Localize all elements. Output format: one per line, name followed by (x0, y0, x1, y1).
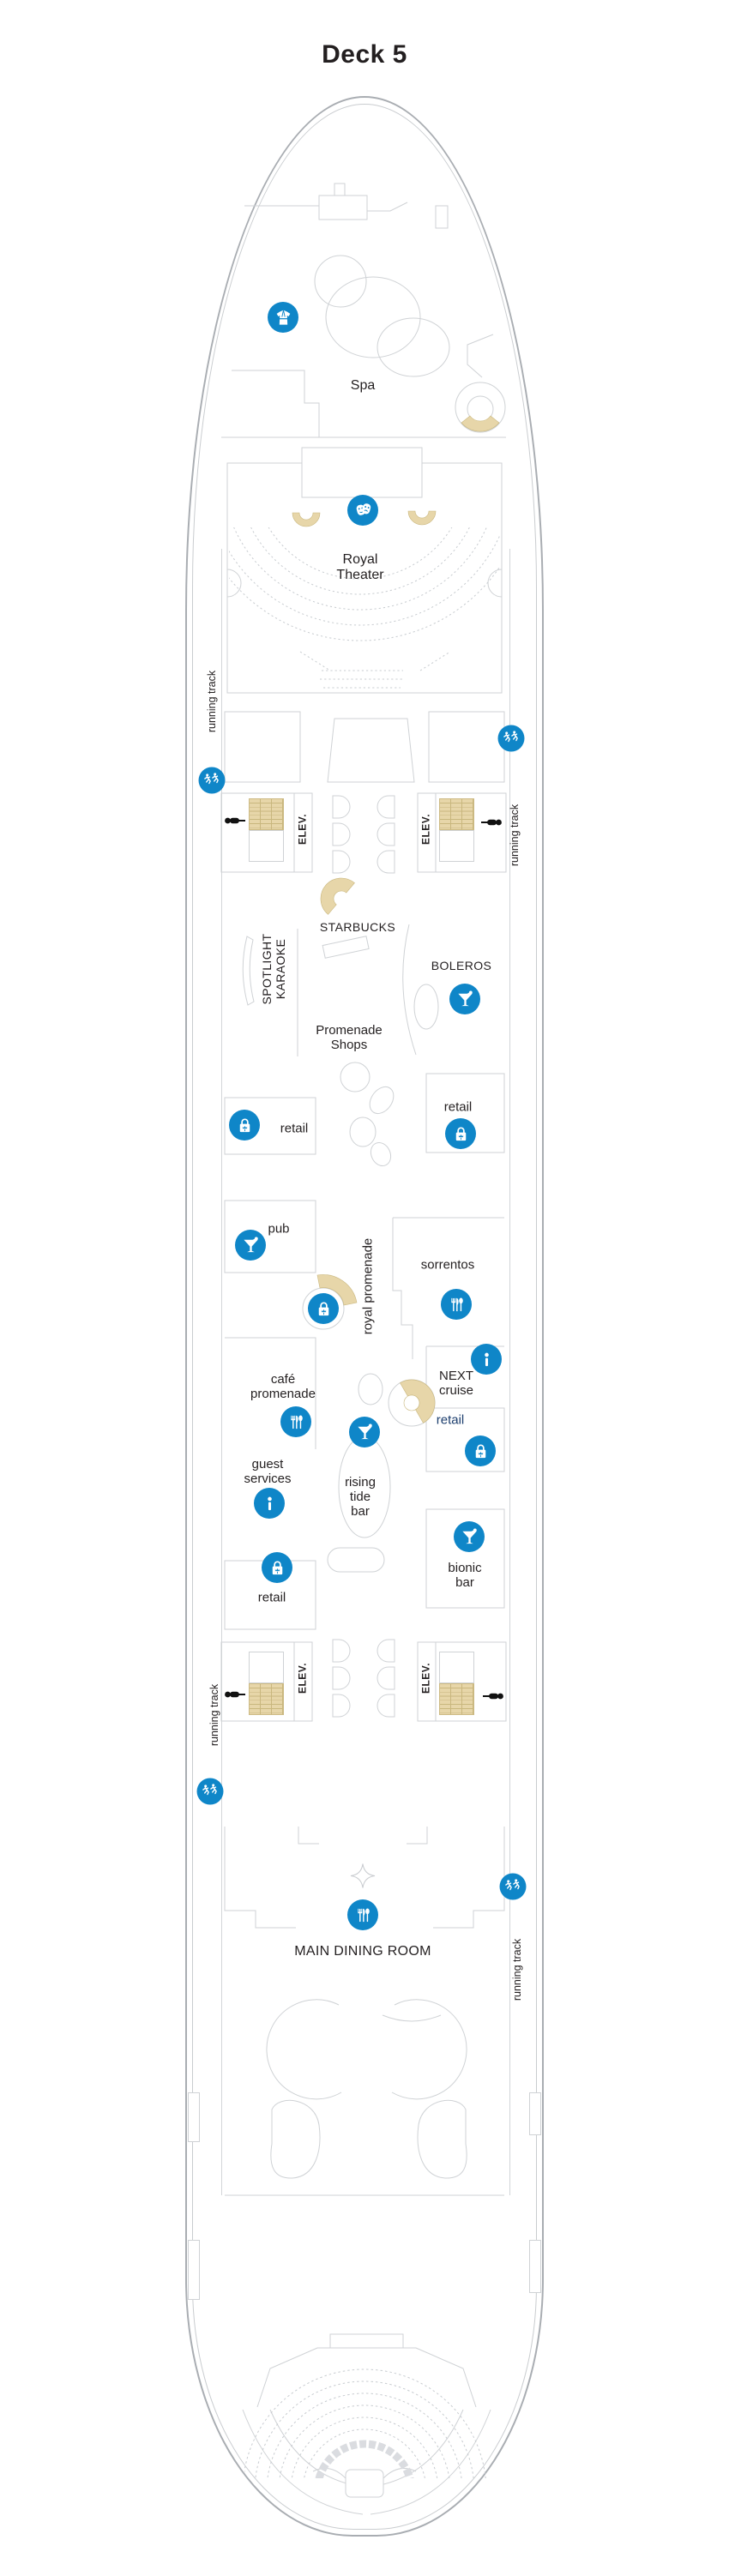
side-box (529, 2240, 541, 2293)
side-box (188, 2240, 200, 2300)
venue-label-promenade-shops: Promenade Shops (306, 1024, 392, 1053)
person-icon (480, 816, 503, 832)
robe-icon (268, 302, 298, 333)
shopping-bag-icon (308, 1293, 339, 1324)
venue-label-royal-theater: Royal Theater (324, 552, 396, 583)
side-box (529, 2092, 541, 2135)
venue-label-pub: pub (268, 1223, 289, 1237)
runner-icon (500, 1874, 527, 1900)
page-title: Deck 5 (322, 40, 407, 69)
shopping-bag-icon (229, 1110, 260, 1141)
dining-icon (441, 1289, 472, 1320)
martini-icon (235, 1230, 266, 1261)
runner-icon (197, 1779, 224, 1805)
venue-label-boleros: BOLEROS (431, 960, 492, 973)
running-track-label: running track (206, 671, 218, 732)
venue-label-retail-3: retail (437, 1414, 465, 1429)
elevator-label: ELEV. (297, 1663, 308, 1694)
venue-label-main-dining-room: MAIN DINING ROOM (294, 1944, 431, 1959)
venue-label-starbucks: STARBUCKS (320, 921, 395, 935)
elevator-label: ELEV. (420, 1663, 431, 1694)
theater-masks-icon (347, 495, 378, 526)
dining-icon (280, 1406, 311, 1437)
shopping-bag-icon (465, 1435, 496, 1466)
martini-icon (349, 1417, 380, 1447)
venue-label-sorrentos: sorrentos (421, 1259, 475, 1273)
spa-stairs-fan (461, 416, 499, 431)
venue-label-royal-promenade: royal promenade (362, 1238, 377, 1335)
person-icon (482, 1690, 504, 1706)
person-icon (224, 1688, 246, 1704)
venue-label-rising-tide-bar: rising tide bar (340, 1476, 381, 1519)
elevator-lobby-box (439, 1652, 474, 1683)
venue-label-retail-1: retail (280, 1122, 309, 1137)
dining-icon (347, 1899, 378, 1930)
venue-label-retail-4: retail (258, 1592, 286, 1606)
running-track-label: running track (509, 804, 521, 866)
elevator-label: ELEV. (297, 814, 308, 845)
venue-label-next-cruise: NEXT cruise (431, 1369, 482, 1399)
venue-label-spa: Spa (351, 378, 375, 394)
martini-icon (449, 984, 480, 1014)
venue-label-cafe-promenade: café promenade (244, 1373, 322, 1402)
starbucks-spiral-stairs (312, 870, 354, 914)
shopping-bag-icon (445, 1118, 476, 1149)
venue-label-spotlight-karaoke: SPOTLIGHT KARAOKE (260, 930, 287, 1008)
side-box (188, 2092, 200, 2142)
venue-label-bionic-bar: bionic bar (441, 1562, 489, 1591)
elevator-lobby-box (249, 1652, 284, 1683)
martini-icon (454, 1521, 485, 1552)
info-icon (254, 1488, 285, 1519)
runner-icon (498, 725, 525, 752)
deck-plan: Deck 5 (0, 0, 729, 2576)
theater-stairs-left (292, 513, 320, 527)
spa-structure (214, 172, 515, 446)
elevator-lobby-box (439, 830, 474, 862)
info-icon (471, 1344, 502, 1375)
person-icon (224, 815, 246, 830)
venue-label-guest-services: guest services (237, 1458, 298, 1487)
stairs-block (439, 798, 474, 830)
running-track-label: running track (511, 1939, 523, 2001)
stairs-block (249, 1683, 284, 1715)
stairs-block (249, 798, 284, 830)
running-track-label: running track (208, 1684, 220, 1746)
sparkle-icon (350, 1863, 376, 1893)
elevator-label: ELEV. (420, 814, 431, 845)
runner-icon (199, 767, 226, 794)
shopping-bag-icon (262, 1552, 292, 1583)
theater-stairs-right (408, 511, 436, 525)
elevator-lobby-box (249, 830, 284, 862)
venue-label-retail-2: retail (444, 1101, 473, 1116)
stairs-block (439, 1683, 474, 1715)
